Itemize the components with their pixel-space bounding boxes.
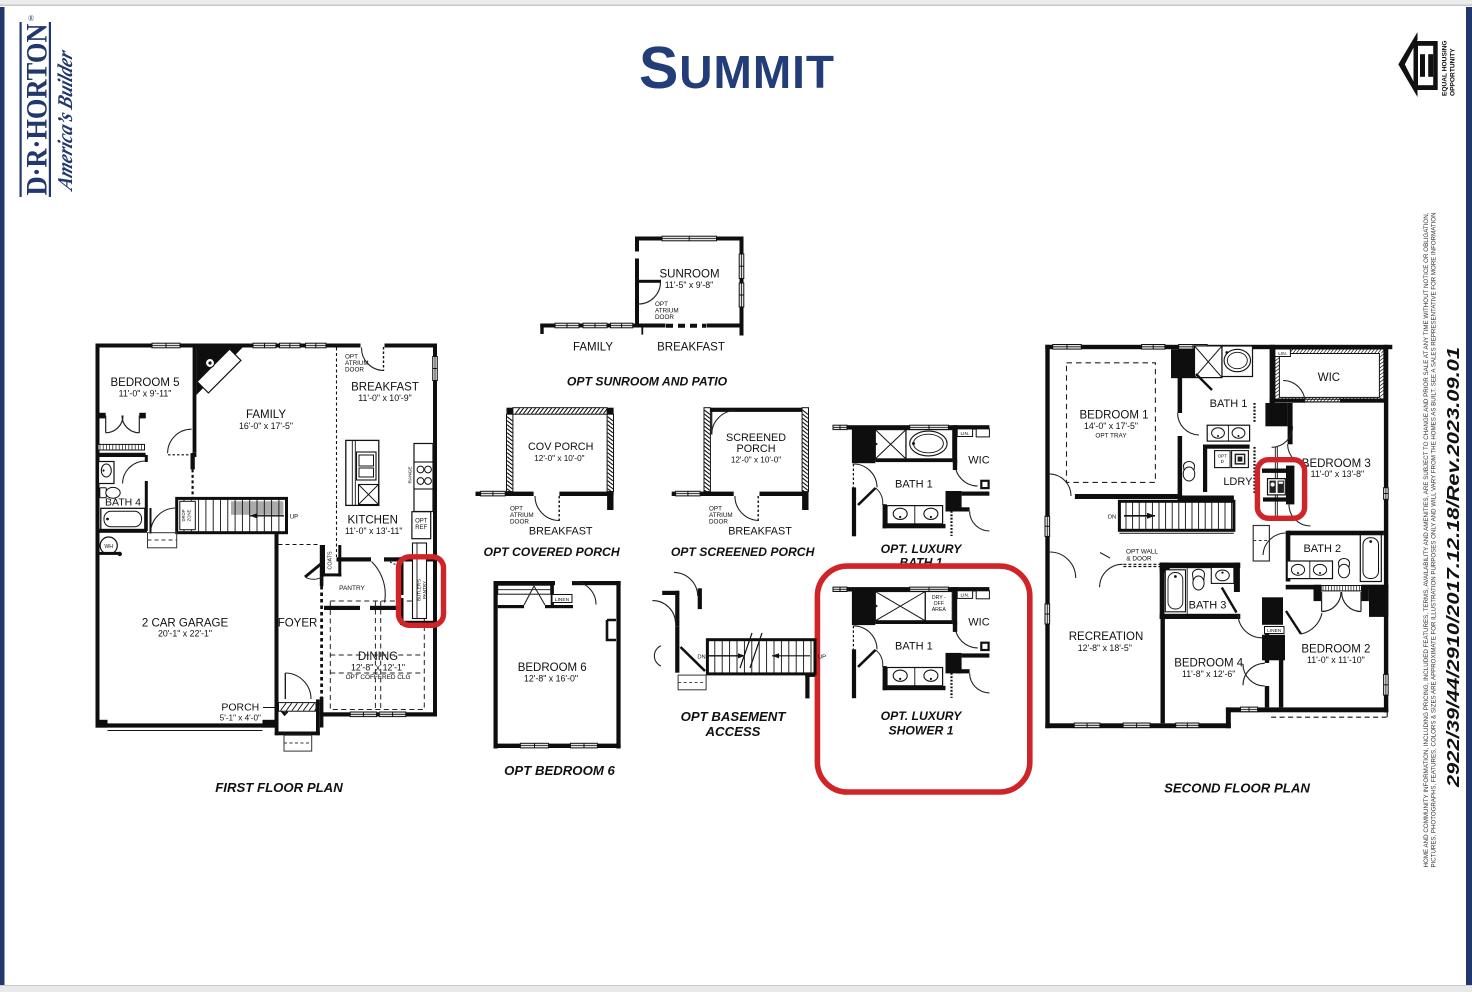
svg-text:FIRST FLOOR PLAN: FIRST FLOOR PLAN (215, 780, 343, 795)
svg-text:PANTRY: PANTRY (422, 581, 427, 599)
svg-text:OPT BEDROOM 6: OPT BEDROOM 6 (504, 763, 615, 778)
svg-text:RANGE: RANGE (408, 466, 414, 483)
svg-text:11'-8" x 12'-6": 11'-8" x 12'-6" (1182, 669, 1235, 679)
svg-text:REF: REF (415, 525, 427, 531)
svg-text:HOME AND COMMUNITY INFORMATION: HOME AND COMMUNITY INFORMATION, INCLUDIN… (1424, 212, 1430, 867)
svg-text:DINING: DINING (358, 651, 398, 663)
svg-text:OPT: OPT (415, 519, 428, 525)
svg-text:America’s Builder: America’s Builder (53, 46, 76, 194)
svg-text:UP: UP (290, 514, 298, 520)
svg-text:11'-0" x 10'-9": 11'-0" x 10'-9" (358, 393, 411, 403)
svg-text:OPT SCREENED PORCH: OPT SCREENED PORCH (671, 545, 816, 559)
svg-text:& DOOR: & DOOR (1126, 556, 1152, 563)
svg-text:12'-8" x 18'-5": 12'-8" x 18'-5" (1078, 643, 1132, 653)
svg-text:PORCH: PORCH (737, 443, 776, 455)
svg-text:OPPORTUNITY: OPPORTUNITY (1450, 48, 1457, 96)
svg-text:OPT. LUXURY: OPT. LUXURY (881, 709, 964, 723)
svg-text:ZONE: ZONE (187, 509, 192, 521)
svg-text:LIN.: LIN. (960, 431, 969, 437)
svg-text:OPT COFFERED CLG: OPT COFFERED CLG (346, 674, 411, 681)
svg-text:BEDROOM 2: BEDROOM 2 (1301, 644, 1370, 656)
svg-text:OPT BASEMENT: OPT BASEMENT (681, 709, 787, 724)
svg-text:DOOR: DOOR (510, 519, 529, 526)
svg-text:LINEN: LINEN (555, 597, 570, 603)
svg-text:BEDROOM 3: BEDROOM 3 (1302, 458, 1371, 470)
svg-text:DN: DN (1108, 515, 1116, 521)
svg-text:AREA: AREA (932, 607, 947, 613)
svg-text:SECOND FLOOR PLAN: SECOND FLOOR PLAN (1164, 781, 1310, 796)
svg-text:BEDROOM 1: BEDROOM 1 (1079, 410, 1148, 422)
svg-text:OPT: OPT (1218, 454, 1228, 459)
svg-text:BEDROOM 6: BEDROOM 6 (518, 662, 587, 674)
svg-text:LIN.: LIN. (1278, 351, 1287, 357)
svg-text:16'-0" x 17'-5": 16'-0" x 17'-5" (239, 421, 293, 431)
svg-text:BREAKFAST: BREAKFAST (529, 526, 593, 538)
svg-text:COATS: COATS (328, 551, 334, 570)
svg-text:12'-0" x 10'-0": 12'-0" x 10'-0" (534, 454, 584, 463)
svg-text:WIC: WIC (968, 455, 989, 467)
svg-text:SUNROOM: SUNROOM (659, 269, 719, 281)
svg-text:LINEN: LINEN (1267, 628, 1282, 634)
svg-text:11'-0" x 13'-11": 11'-0" x 13'-11" (345, 526, 403, 536)
svg-text:D·R·HORTON: D·R·HORTON (20, 23, 53, 195)
svg-text:WH: WH (104, 544, 113, 550)
svg-text:BATH 2: BATH 2 (1303, 543, 1341, 555)
svg-text:PICTURES, PHOTOGRAPHS, FEATURE: PICTURES, PHOTOGRAPHS, FEATURES, COLORS … (1432, 213, 1438, 868)
svg-text:11'-5" x 9'-8": 11'-5" x 9'-8" (665, 280, 714, 290)
svg-text:EQUAL HOUSING: EQUAL HOUSING (1442, 40, 1449, 96)
svg-text:FOYER: FOYER (278, 618, 318, 630)
svg-text:DN: DN (697, 655, 705, 661)
svg-text:BATH 1: BATH 1 (895, 640, 933, 652)
svg-text:BATH 1: BATH 1 (1210, 398, 1248, 410)
svg-text:11'-0" x 9'-11": 11'-0" x 9'-11" (119, 389, 172, 399)
svg-text:12'-0" x 10'-0": 12'-0" x 10'-0" (731, 456, 781, 465)
svg-text:OPT SUNROOM AND PATIO: OPT SUNROOM AND PATIO (567, 374, 728, 388)
svg-text:DOOR: DOOR (655, 314, 674, 321)
svg-text:BREAKFAST: BREAKFAST (657, 342, 725, 354)
svg-text:OPT. LUXURY: OPT. LUXURY (881, 542, 964, 556)
svg-text:5'-1" x 4'-0": 5'-1" x 4'-0" (220, 714, 261, 723)
svg-text:11'-0" x 13'-8": 11'-0" x 13'-8" (1311, 469, 1364, 479)
svg-text:12'-8" x 12'-1": 12'-8" x 12'-1" (351, 663, 405, 673)
svg-text:WIC: WIC (968, 616, 989, 628)
svg-text:LDRY: LDRY (1223, 476, 1253, 488)
svg-text:20'-1" x 22'-1": 20'-1" x 22'-1" (158, 629, 212, 639)
svg-text:DOOR: DOOR (709, 519, 728, 526)
svg-text:14'-0" x 17'-5": 14'-0" x 17'-5" (1084, 421, 1138, 431)
svg-text:WIC: WIC (1318, 372, 1340, 384)
svg-text:BATH 1: BATH 1 (895, 479, 933, 491)
svg-text:OPT TRAY: OPT TRAY (1095, 433, 1127, 440)
svg-text:KITCHEN: KITCHEN (347, 515, 397, 527)
svg-text:BEDROOM 4: BEDROOM 4 (1174, 658, 1244, 670)
svg-text:BREAKFAST: BREAKFAST (728, 526, 792, 538)
svg-text:PORCH: PORCH (221, 702, 259, 714)
svg-text:FAMILY: FAMILY (573, 342, 613, 354)
svg-text:OPT WALL: OPT WALL (1126, 549, 1158, 556)
svg-text:BEDROOM 5: BEDROOM 5 (110, 377, 179, 389)
svg-text:BUTLER'S: BUTLER'S (417, 579, 422, 601)
svg-text:RECREATION: RECREATION (1069, 631, 1144, 643)
svg-text:BATH 3: BATH 3 (1189, 600, 1227, 612)
svg-text:PANTRY: PANTRY (339, 585, 365, 592)
svg-text:SHOWER 1: SHOWER 1 (888, 724, 953, 738)
svg-text:COV PORCH: COV PORCH (528, 441, 593, 453)
svg-text:OPT COVERED PORCH: OPT COVERED PORCH (484, 545, 621, 559)
svg-text:ACCESS: ACCESS (705, 724, 761, 739)
svg-text:DOOR: DOOR (345, 367, 364, 374)
svg-text:11'-0" x 11'-10": 11'-0" x 11'-10" (1307, 655, 1365, 665)
svg-text:®: ® (28, 14, 34, 23)
svg-text:LIN.: LIN. (960, 593, 969, 599)
svg-text:DROP: DROP (181, 509, 186, 521)
svg-text:12'-8" x 16'-0": 12'-8" x 16'-0" (524, 674, 578, 684)
svg-text:UP: UP (818, 654, 826, 660)
svg-text:FAMILY: FAMILY (246, 409, 286, 421)
svg-text:2922/39/44/2910/2017.12.18/Rev: 2922/39/44/2910/2017.12.18/Rev.2023.09.0… (1443, 347, 1463, 788)
svg-text:BREAKFAST: BREAKFAST (351, 382, 419, 394)
